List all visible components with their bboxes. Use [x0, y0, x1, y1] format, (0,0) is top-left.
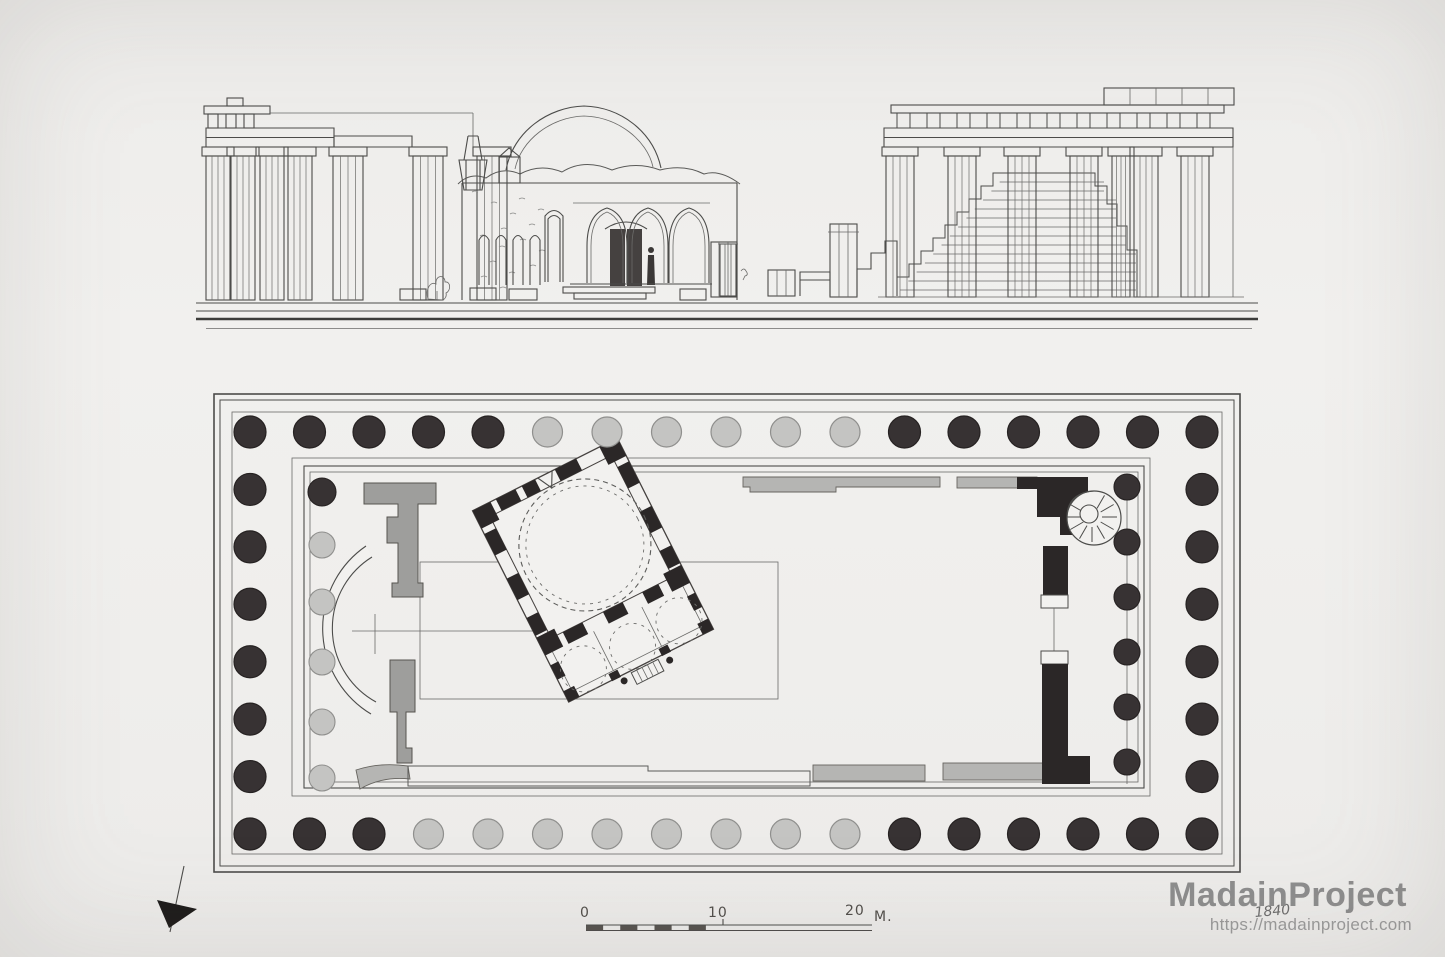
- peristyle-column: [234, 761, 266, 793]
- scale-label-0: 0: [580, 905, 590, 921]
- peristyle-column: [533, 819, 563, 849]
- peristyle-column: [234, 703, 266, 735]
- pointed-arch: [669, 208, 709, 283]
- peristyle-column: [413, 416, 445, 448]
- scale-label-10: 10: [708, 905, 728, 921]
- tall-window: [545, 211, 563, 283]
- arched-window: [513, 236, 523, 286]
- arched-window: [496, 236, 506, 286]
- peristyle-column: [1127, 818, 1159, 850]
- east-porch-column: [1114, 749, 1140, 775]
- peristyle-column: [1186, 703, 1218, 735]
- peristyle-column: [234, 588, 266, 620]
- scale-bar: 0 10 20 M.: [580, 903, 893, 931]
- peristyle-column: [592, 417, 622, 447]
- peristyle-column: [592, 819, 622, 849]
- east-porch-column: [1114, 694, 1140, 720]
- peristyle-column: [353, 818, 385, 850]
- rubble-stroke: [510, 213, 516, 214]
- rubble-stroke: [481, 276, 487, 277]
- mosque-plan: [473, 438, 721, 715]
- entablature-post: [957, 113, 970, 128]
- peristyle-column: [652, 819, 682, 849]
- rubble-stroke: [501, 228, 507, 229]
- peristyle-column: [830, 417, 860, 447]
- arched-window: [530, 236, 540, 286]
- scale-unit: M.: [874, 909, 893, 925]
- column-capital: [1177, 147, 1213, 156]
- rubble-stroke: [490, 261, 496, 262]
- rooftop-turret: [499, 148, 520, 183]
- peristyle-column: [771, 417, 801, 447]
- scale-segment: [586, 926, 603, 931]
- raised-cornice: [1104, 88, 1234, 105]
- west-wall-pier: [364, 483, 436, 597]
- peristyle-column: [1186, 473, 1218, 505]
- drum-stump: [768, 270, 795, 296]
- entablature-post: [1047, 113, 1060, 128]
- human-figure: [647, 247, 655, 285]
- column-capital: [1004, 147, 1040, 156]
- rubble-stroke: [509, 272, 515, 273]
- dome-outline: [506, 106, 661, 170]
- pier-base: [1041, 595, 1068, 608]
- peristyle-column: [1186, 416, 1218, 448]
- entablature-post: [1197, 113, 1210, 128]
- roof-parapet: [458, 164, 740, 184]
- entablature-post: [897, 113, 910, 128]
- tree-scribble: [427, 277, 449, 300]
- peristyle-column: [1186, 761, 1218, 793]
- entablature-post: [1077, 113, 1090, 128]
- west-porch-column: [309, 709, 335, 735]
- peristyle-column: [652, 417, 682, 447]
- peristyle-column: [1186, 818, 1218, 850]
- step-debris: [857, 241, 897, 296]
- cella-platform: [310, 472, 1138, 782]
- peristyle-column: [234, 818, 266, 850]
- west-porch-column: [309, 649, 335, 675]
- peristyle-column: [1127, 416, 1159, 448]
- scale-segment: [689, 926, 706, 931]
- column-fragments: [718, 224, 897, 297]
- peristyle-column: [234, 473, 266, 505]
- entablature-post: [987, 113, 1000, 128]
- peristyle-column: [830, 819, 860, 849]
- elevation-view: [196, 88, 1258, 329]
- column-capital: [1066, 147, 1102, 156]
- cella-platform: [304, 466, 1144, 788]
- south-wall-outline: [408, 766, 810, 786]
- south-wall-fragment: [943, 763, 1047, 780]
- northeast-wall: [1017, 477, 1037, 489]
- rubble-stroke: [500, 287, 506, 288]
- column-capital: [329, 147, 367, 156]
- east-ruin-group: [878, 88, 1244, 297]
- peristyle-column: [948, 416, 980, 448]
- rubble-stroke: [529, 224, 535, 225]
- peristyle-column: [294, 416, 326, 448]
- low-wall: [800, 272, 830, 296]
- west-porch-column: [309, 589, 335, 615]
- column-capital: [1130, 147, 1162, 156]
- dome-inner: [515, 116, 653, 169]
- peristyle-column: [948, 818, 980, 850]
- peristyle-column: [294, 818, 326, 850]
- east-porch-column: [1114, 474, 1140, 500]
- peristyle-column: [889, 416, 921, 448]
- rubble-stroke: [499, 246, 505, 247]
- west-porch-column: [308, 478, 336, 506]
- apse: [323, 546, 376, 714]
- arched-window: [479, 236, 489, 286]
- scribble: [741, 269, 747, 280]
- peristyle-column: [472, 416, 504, 448]
- column-capital: [227, 147, 259, 156]
- cella-platform: [292, 458, 1150, 796]
- peristyle-column: [1067, 416, 1099, 448]
- mosque-elevation: [458, 106, 740, 300]
- peristyle-column: [473, 819, 503, 849]
- east-porch-column: [1114, 584, 1140, 610]
- peristyle-column: [353, 416, 385, 448]
- drum-stump: [828, 224, 859, 297]
- east-porch-column: [1114, 529, 1140, 555]
- peristyle-column: [1008, 416, 1040, 448]
- pointed-arch-inner: [673, 212, 705, 283]
- north-wall-fragment: [743, 477, 940, 492]
- watermark-url: https://madainproject.com: [1210, 915, 1412, 934]
- porch-pier: [711, 242, 737, 297]
- spiral-staircase: [1067, 491, 1121, 545]
- south-wall-fragment: [813, 765, 925, 781]
- column-capital: [409, 147, 447, 156]
- rubble-stroke: [491, 202, 497, 203]
- peristyle-column: [533, 417, 563, 447]
- peristyle-column: [1186, 531, 1218, 563]
- pier-base: [1041, 651, 1068, 664]
- ground-line: [196, 303, 1258, 311]
- floor-plan: [214, 394, 1240, 872]
- rubble-wall-texture: [472, 191, 545, 288]
- peristyle-column: [711, 417, 741, 447]
- watermark: 1840 MadainProject https://madainproject…: [1168, 876, 1412, 934]
- scale-segment: [620, 926, 637, 931]
- east-pier: [1043, 546, 1068, 595]
- inner-porch-columns: [308, 474, 1140, 791]
- mound-steps: [897, 173, 1137, 297]
- west-porch-column: [309, 532, 335, 558]
- rubble-stroke: [519, 198, 525, 199]
- column-stub: [665, 655, 674, 664]
- peristyle-column: [1186, 646, 1218, 678]
- north-arrow-icon: [157, 866, 197, 932]
- column-capital: [202, 147, 234, 156]
- peristyle-column: [771, 819, 801, 849]
- column-stub: [619, 676, 628, 685]
- peristyle-column: [1008, 818, 1040, 850]
- parthenon-drawing: 0 10 20 M. 1840 MadainProject https://ma…: [0, 0, 1445, 957]
- peristyle-column: [1186, 588, 1218, 620]
- west-porch-column: [309, 765, 335, 791]
- east-porch-column: [1114, 639, 1140, 665]
- column-capital: [944, 147, 980, 156]
- entablature-post: [1137, 113, 1150, 128]
- peristyle-column: [711, 819, 741, 849]
- scanned-drawing-page: 0 10 20 M. 1840 MadainProject https://ma…: [0, 0, 1445, 957]
- peristyle-column: [1067, 818, 1099, 850]
- wall-fragment: [356, 765, 410, 789]
- entablature-post: [1167, 113, 1180, 128]
- entablature-post: [1107, 113, 1120, 128]
- west-ruin-group: [202, 98, 511, 300]
- southeast-wall: [1042, 664, 1090, 784]
- rubble-stroke: [530, 265, 536, 266]
- rubble-stroke: [472, 191, 478, 192]
- peristyle-column: [234, 416, 266, 448]
- column-capital: [882, 147, 918, 156]
- entablature-post: [1017, 113, 1030, 128]
- column-capital: [256, 147, 288, 156]
- peristyle-column: [889, 818, 921, 850]
- watermark-brand: MadainProject: [1168, 876, 1407, 914]
- peristyle-column: [234, 646, 266, 678]
- arched-windows: [479, 236, 540, 286]
- west-wall-pier: [390, 660, 415, 763]
- column-capital: [284, 147, 316, 156]
- scale-segment: [655, 926, 672, 931]
- debris-mound: [897, 173, 1137, 297]
- rubble-stroke: [538, 209, 544, 210]
- entablature-post: [927, 113, 940, 128]
- peristyle-column: [414, 819, 444, 849]
- peristyle-column: [234, 531, 266, 563]
- scale-label-20: 20: [845, 903, 865, 919]
